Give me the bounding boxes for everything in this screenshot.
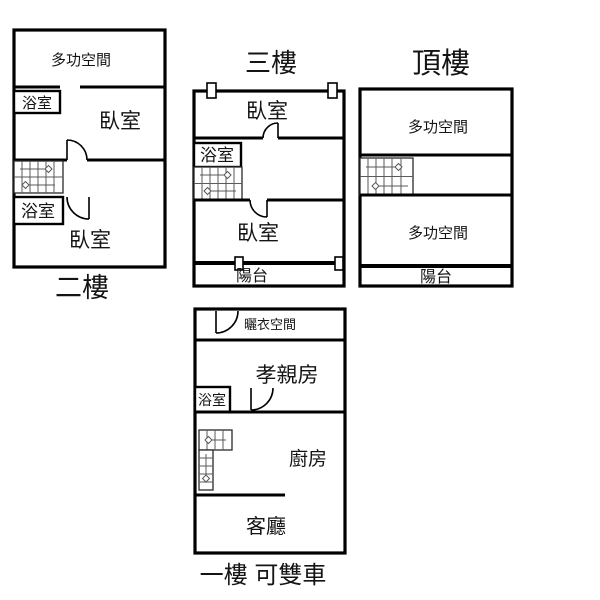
room-label: 臥室 — [246, 100, 288, 123]
room-label: 多功空間 — [51, 52, 111, 69]
window-marker-icon — [328, 83, 337, 98]
room-label: 孝親房 — [256, 364, 319, 387]
3f-stairs-icon — [194, 167, 242, 200]
floorplan-roof: 頂樓 多功空間 多功空間 陽台 — [360, 47, 512, 286]
floorplan-drawing: 多功空間 浴室 臥室 浴室 臥室 二樓 三樓 — [0, 0, 600, 600]
room-label: 陽台 — [420, 268, 452, 286]
room-label: 臥室 — [237, 222, 279, 245]
floorplan-sheet: 多功空間 浴室 臥室 浴室 臥室 二樓 三樓 — [0, 0, 600, 600]
room-label: 客廳 — [246, 515, 286, 538]
floorplan-3f: 三樓 臥室 浴室 臥室 陽台 — [194, 48, 344, 286]
floor-title-3f: 三樓 — [245, 48, 297, 78]
room-label: 浴室 — [200, 146, 234, 165]
room-label: 臥室 — [69, 229, 111, 252]
room-label: 曬衣空間 — [244, 317, 296, 332]
room-label: 臥室 — [99, 110, 141, 133]
room-label: 陽台 — [236, 267, 268, 285]
roof-stairs-icon — [360, 158, 413, 195]
floor-title-1f: 一樓 可雙車 — [200, 562, 327, 589]
room-label: 浴室 — [21, 202, 55, 221]
window-marker-icon — [207, 83, 216, 98]
floorplan-2f: 多功空間 浴室 臥室 浴室 臥室 二樓 — [14, 30, 165, 303]
floorplan-1f: 曬衣空間 孝親房 浴室 廚房 客廳 一樓 可雙車 — [195, 309, 345, 589]
window-marker-icon — [335, 257, 343, 270]
2f-stairs-icon — [14, 161, 63, 193]
room-label: 多功空間 — [408, 225, 468, 242]
floor-title-roof: 頂樓 — [412, 47, 470, 80]
floor-title-2f: 二樓 — [55, 273, 109, 303]
room-label: 多功空間 — [408, 119, 468, 136]
room-label: 浴室 — [198, 392, 226, 408]
room-label: 廚房 — [289, 447, 327, 470]
room-label: 浴室 — [22, 95, 52, 112]
